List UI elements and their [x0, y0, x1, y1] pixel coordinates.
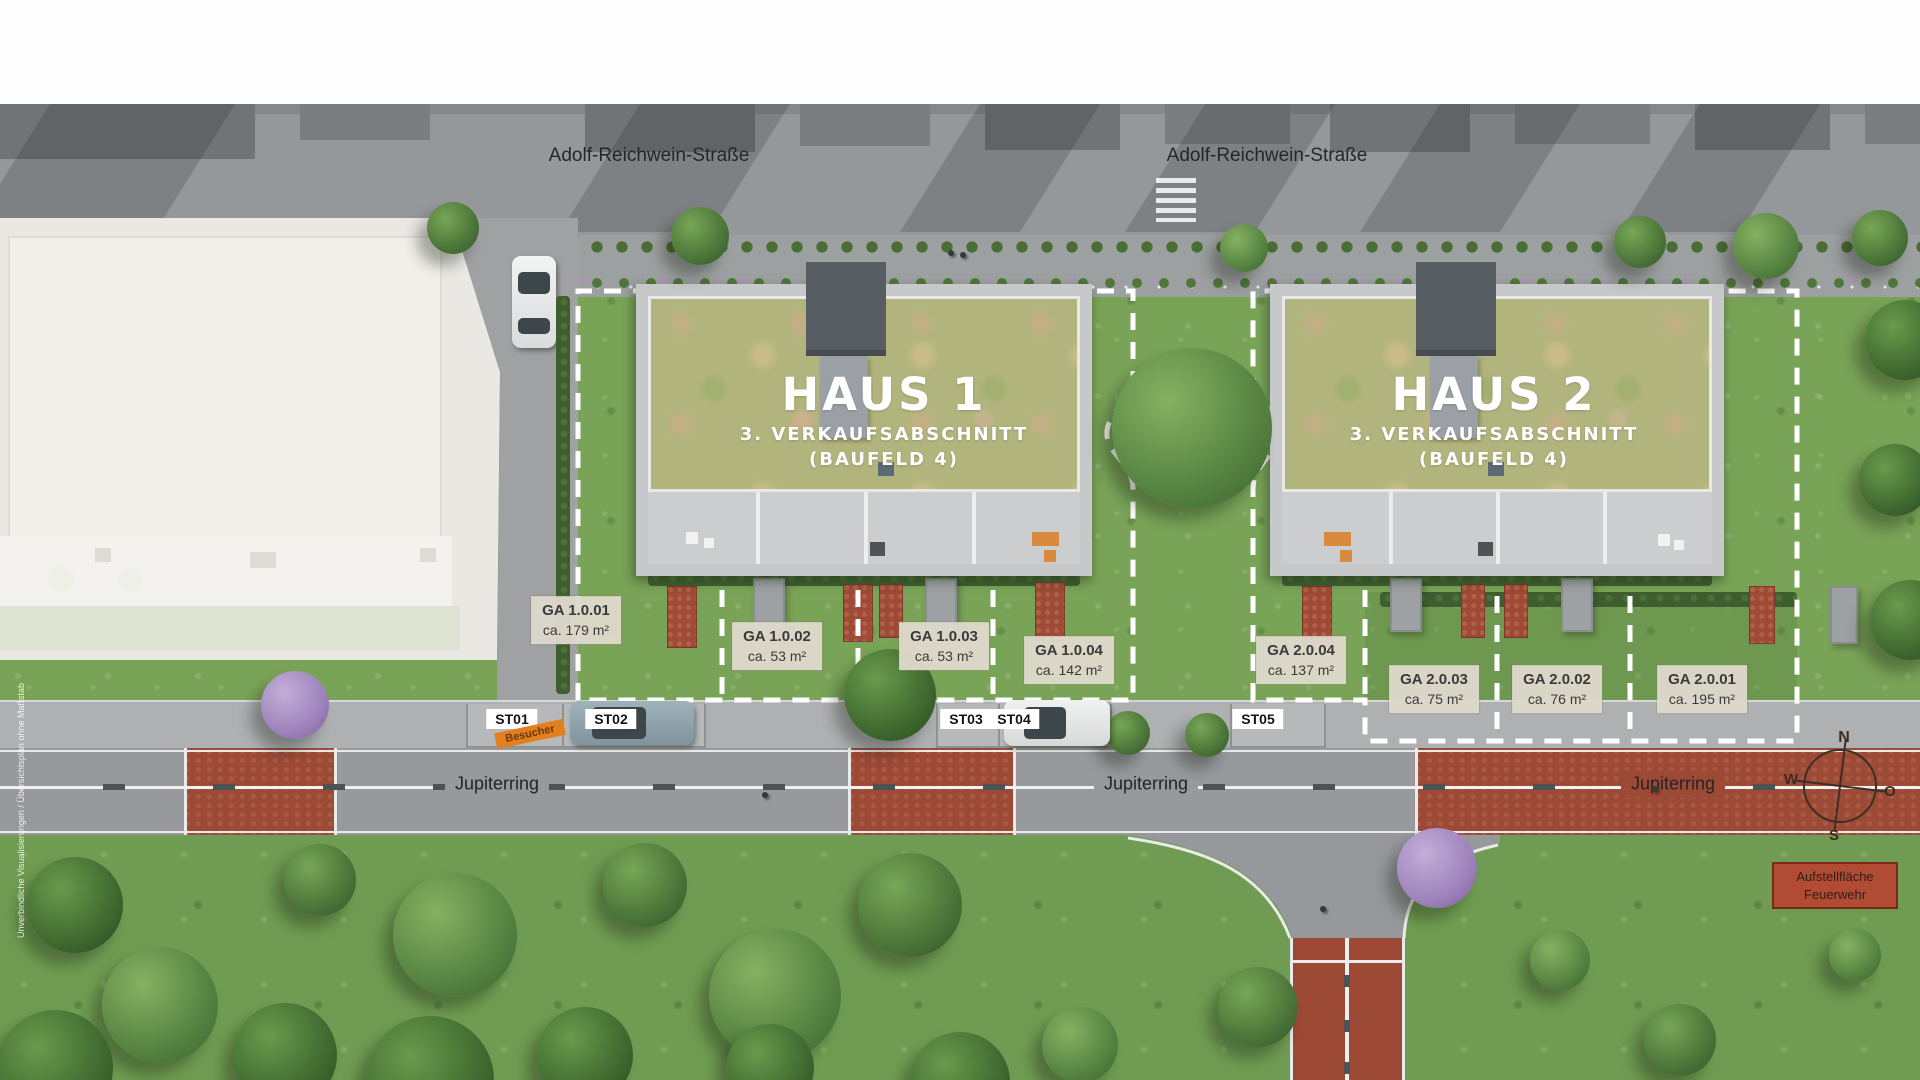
stall-label-st05: ST05: [1232, 709, 1283, 729]
person: [1320, 906, 1326, 912]
garden-label-ga-2-0-04: GA 2.0.04 ca. 137 m²: [1256, 636, 1346, 684]
stall-label-st04: ST04: [988, 709, 1039, 729]
tree: [284, 844, 356, 916]
tree: [671, 207, 729, 265]
street-label-jupiterring-left: Jupiterring: [445, 771, 549, 798]
haus-1-detail: (BAUFELD 4): [740, 449, 1029, 470]
tree: [1614, 216, 1666, 268]
person: [1652, 786, 1658, 792]
tree: [102, 947, 218, 1063]
garden-label-ga-1-0-04: GA 1.0.04 ca. 142 m²: [1024, 636, 1114, 684]
tree: [1644, 1004, 1716, 1076]
street-jupiterring: Jupiterring Jupiterring Jupiterring: [0, 748, 1920, 835]
garden-terrace: [843, 584, 873, 642]
haus-1-title: HAUS 1: [740, 372, 1029, 417]
stall-label-st03: ST03: [940, 709, 991, 729]
tree: [603, 843, 687, 927]
car: [512, 256, 556, 348]
person: [960, 252, 966, 258]
disclaimer-text: Unverbindliche Visualisierungen / Übersi…: [16, 723, 26, 938]
existing-building-faded: [0, 218, 500, 660]
tree: [1829, 929, 1881, 981]
tree: [427, 202, 479, 254]
tree: [1220, 224, 1268, 272]
tree: [1112, 348, 1272, 508]
garden-terrace: [1504, 584, 1528, 638]
haus-2-label: HAUS 2 3. VERKAUFSABSCHNITT (BAUFELD 4): [1350, 372, 1639, 470]
terraces: [648, 489, 1080, 564]
tree: [1530, 930, 1590, 990]
garden-label-ga-2-0-02: GA 2.0.02 ca. 76 m²: [1512, 665, 1602, 713]
person: [762, 792, 768, 798]
street-label-adolf-left: Adolf-Reichwein-Straße: [549, 145, 750, 167]
tree: [1852, 210, 1908, 266]
paved-crossing: [848, 748, 1016, 835]
stall-label-st02: ST02: [585, 709, 636, 729]
garden-label-ga-1-0-02: GA 1.0.02 ca. 53 m²: [732, 622, 822, 670]
garden-shed: [1561, 578, 1593, 632]
stair-core: [1416, 262, 1496, 356]
tree: [1042, 1007, 1118, 1080]
tree: [858, 853, 962, 957]
garden-label-ga-2-0-03: GA 2.0.03 ca. 75 m²: [1389, 665, 1479, 713]
haus-1-label: HAUS 1 3. VERKAUFSABSCHNITT (BAUFELD 4): [740, 372, 1029, 470]
garden-label-ga-1-0-03: GA 1.0.03 ca. 53 m²: [899, 622, 989, 670]
street-label-jupiterring-right: Jupiterring: [1621, 771, 1725, 798]
top-margin: [0, 0, 1920, 104]
tree: [1733, 213, 1799, 279]
haus-2-detail: (BAUFELD 4): [1350, 449, 1639, 470]
haus-2-title: HAUS 2: [1350, 372, 1639, 417]
fire-access-label: Aufstellfläche Feuerwehr: [1772, 862, 1898, 909]
street-label-adolf-right: Adolf-Reichwein-Straße: [1167, 145, 1368, 167]
compass-icon: N O S W: [1782, 728, 1898, 844]
svg-text:N: N: [1838, 729, 1850, 746]
person: [948, 250, 954, 256]
garden-label-ga-1-0-01: GA 1.0.01 ca. 179 m²: [531, 596, 621, 644]
haus-1-subtitle: 3. VERKAUFSABSCHNITT: [740, 424, 1029, 445]
crosswalk: [1156, 178, 1196, 222]
svg-text:S: S: [1829, 827, 1839, 844]
tree: [393, 873, 517, 997]
svg-text:O: O: [1884, 783, 1896, 800]
street-label-jupiterring-center: Jupiterring: [1094, 771, 1198, 798]
tree-purple: [261, 671, 329, 739]
svg-text:W: W: [1784, 771, 1799, 788]
garden-label-ga-2-0-01: GA 2.0.01 ca. 195 m²: [1657, 665, 1747, 713]
stair-core: [806, 262, 886, 356]
garden-terrace: [1035, 582, 1065, 642]
garden-shed: [1390, 578, 1422, 632]
haus-2-subtitle: 3. VERKAUFSABSCHNITT: [1350, 424, 1639, 445]
terraces: [1282, 489, 1712, 564]
garden-terrace: [1749, 586, 1775, 644]
site-plan: Adolf-Reichwein-Straße Adolf-Reichwein-S…: [0, 0, 1920, 1080]
tree: [1185, 713, 1229, 757]
garden-terrace: [667, 586, 697, 648]
paved-crossing: [184, 748, 337, 835]
tree: [1218, 967, 1298, 1047]
garden-shed: [1830, 586, 1858, 644]
tree: [1106, 711, 1150, 755]
tree-purple: [1397, 828, 1477, 908]
garden-terrace: [1461, 584, 1485, 638]
tree: [27, 857, 123, 953]
